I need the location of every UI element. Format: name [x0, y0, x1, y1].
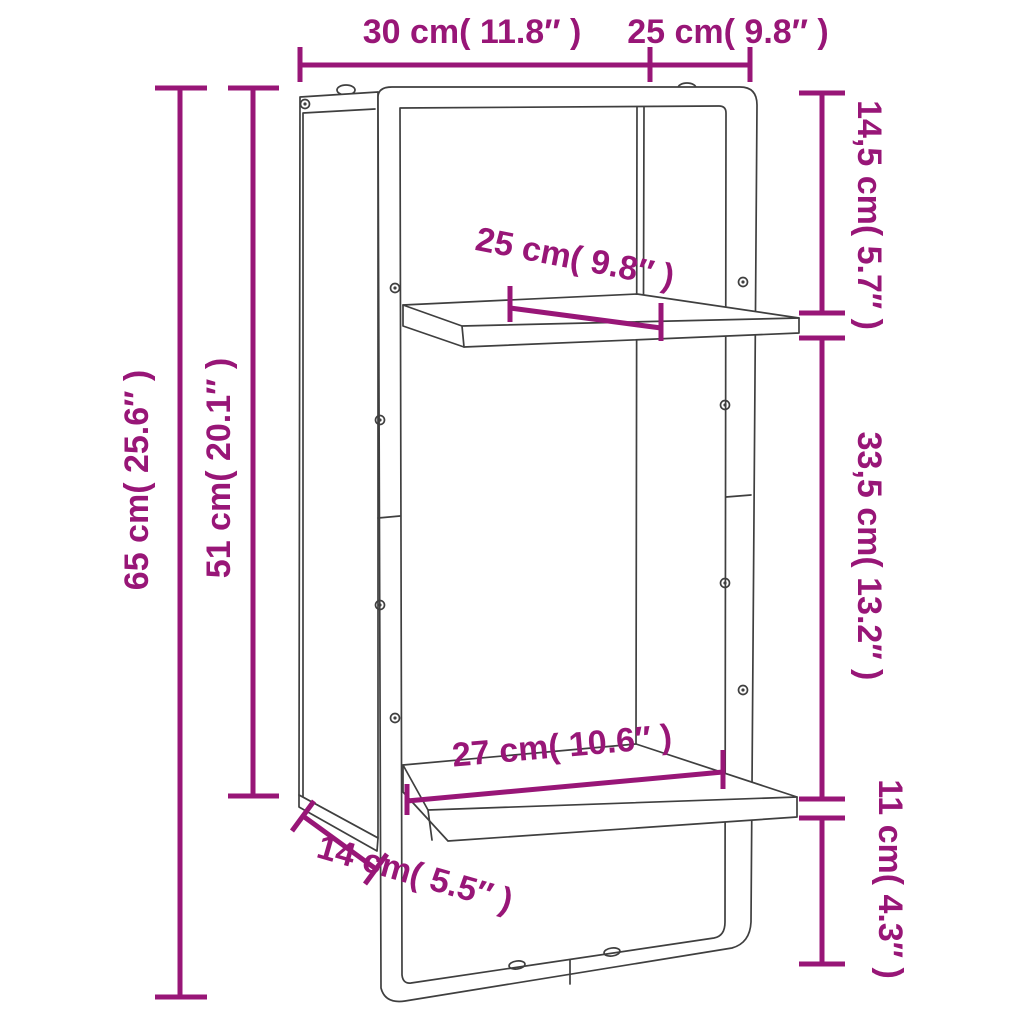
dim-shelf-spacing-line	[799, 338, 845, 799]
dim-shelf-spacing-label: 33,5 cm( 13.2″ )	[850, 432, 888, 681]
dim-top-width-line	[300, 47, 650, 82]
dim-shelf-to-bottom-line	[799, 818, 845, 964]
dim-top-to-shelf-label: 14,5 cm( 5.7″ )	[850, 100, 888, 330]
back-right-edge	[636, 107, 637, 744]
frame-screws	[376, 278, 748, 723]
dim-top-width-label: 30 cm( 11.8″ )	[363, 13, 582, 51]
wall-shelf-diagram-svg: 30 cm( 11.8″ ) 25 cm( 9.8″ ) 65 cm( 25.6…	[0, 0, 1024, 1024]
dim-top-to-shelf-line	[799, 93, 845, 313]
dim-shelf-depth-label: 25 cm( 9.8″ )	[472, 220, 677, 296]
dim-panel-height-label: 51 cm( 20.1″ )	[200, 358, 238, 578]
dim-overall-height-label: 65 cm( 25.6″ )	[118, 370, 156, 590]
dim-top-depth-label: 25 cm( 9.8″ )	[627, 13, 829, 51]
dim-shelf-to-bottom-label: 11 cm( 4.3″ )	[871, 779, 909, 979]
dimension-diagram: 30 cm( 11.8″ ) 25 cm( 9.8″ ) 65 cm( 25.6…	[0, 0, 1024, 1024]
dim-top-depth-line	[650, 47, 750, 82]
side-panel	[299, 92, 378, 838]
dim-panel-depth-label: 14 cm( 5.5″ )	[313, 828, 517, 920]
screw-panel-top-dot	[303, 102, 306, 105]
